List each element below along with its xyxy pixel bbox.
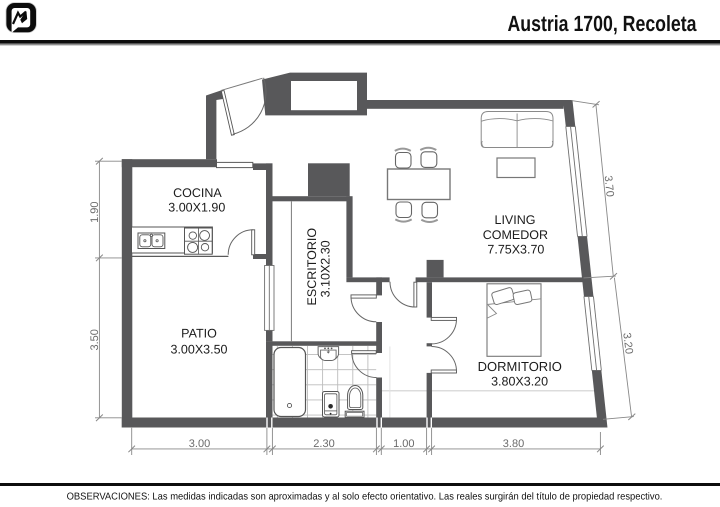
svg-text:COCINA: COCINA <box>173 186 222 200</box>
svg-text:DORMITORIO: DORMITORIO <box>478 359 562 374</box>
svg-text:PATIO: PATIO <box>181 327 217 341</box>
svg-text:OBSERVACIONES: Las medidas ind: OBSERVACIONES: Las medidas indicadas son… <box>67 492 663 503</box>
svg-text:1.90: 1.90 <box>89 201 101 222</box>
svg-text:3.80: 3.80 <box>503 438 524 450</box>
svg-text:3.80X3.20: 3.80X3.20 <box>491 374 548 388</box>
svg-text:3.70: 3.70 <box>602 175 616 198</box>
svg-text:COMEDOR: COMEDOR <box>483 228 548 242</box>
svg-text:ESCRITORIO: ESCRITORIO <box>305 228 319 306</box>
svg-text:LIVING: LIVING <box>495 213 536 227</box>
svg-text:3.20: 3.20 <box>620 332 635 355</box>
svg-text:7.75X3.70: 7.75X3.70 <box>487 243 544 257</box>
svg-text:3.00X3.50: 3.00X3.50 <box>171 342 228 356</box>
svg-text:2.30: 2.30 <box>313 438 334 450</box>
svg-text:Austria 1700, Recoleta: Austria 1700, Recoleta <box>508 11 698 36</box>
svg-text:3.50: 3.50 <box>89 329 101 350</box>
svg-text:1.00: 1.00 <box>393 438 414 450</box>
svg-text:3.10X2.30: 3.10X2.30 <box>319 240 333 297</box>
svg-text:3.00X1.90: 3.00X1.90 <box>168 201 225 215</box>
svg-text:3.00: 3.00 <box>189 438 210 450</box>
